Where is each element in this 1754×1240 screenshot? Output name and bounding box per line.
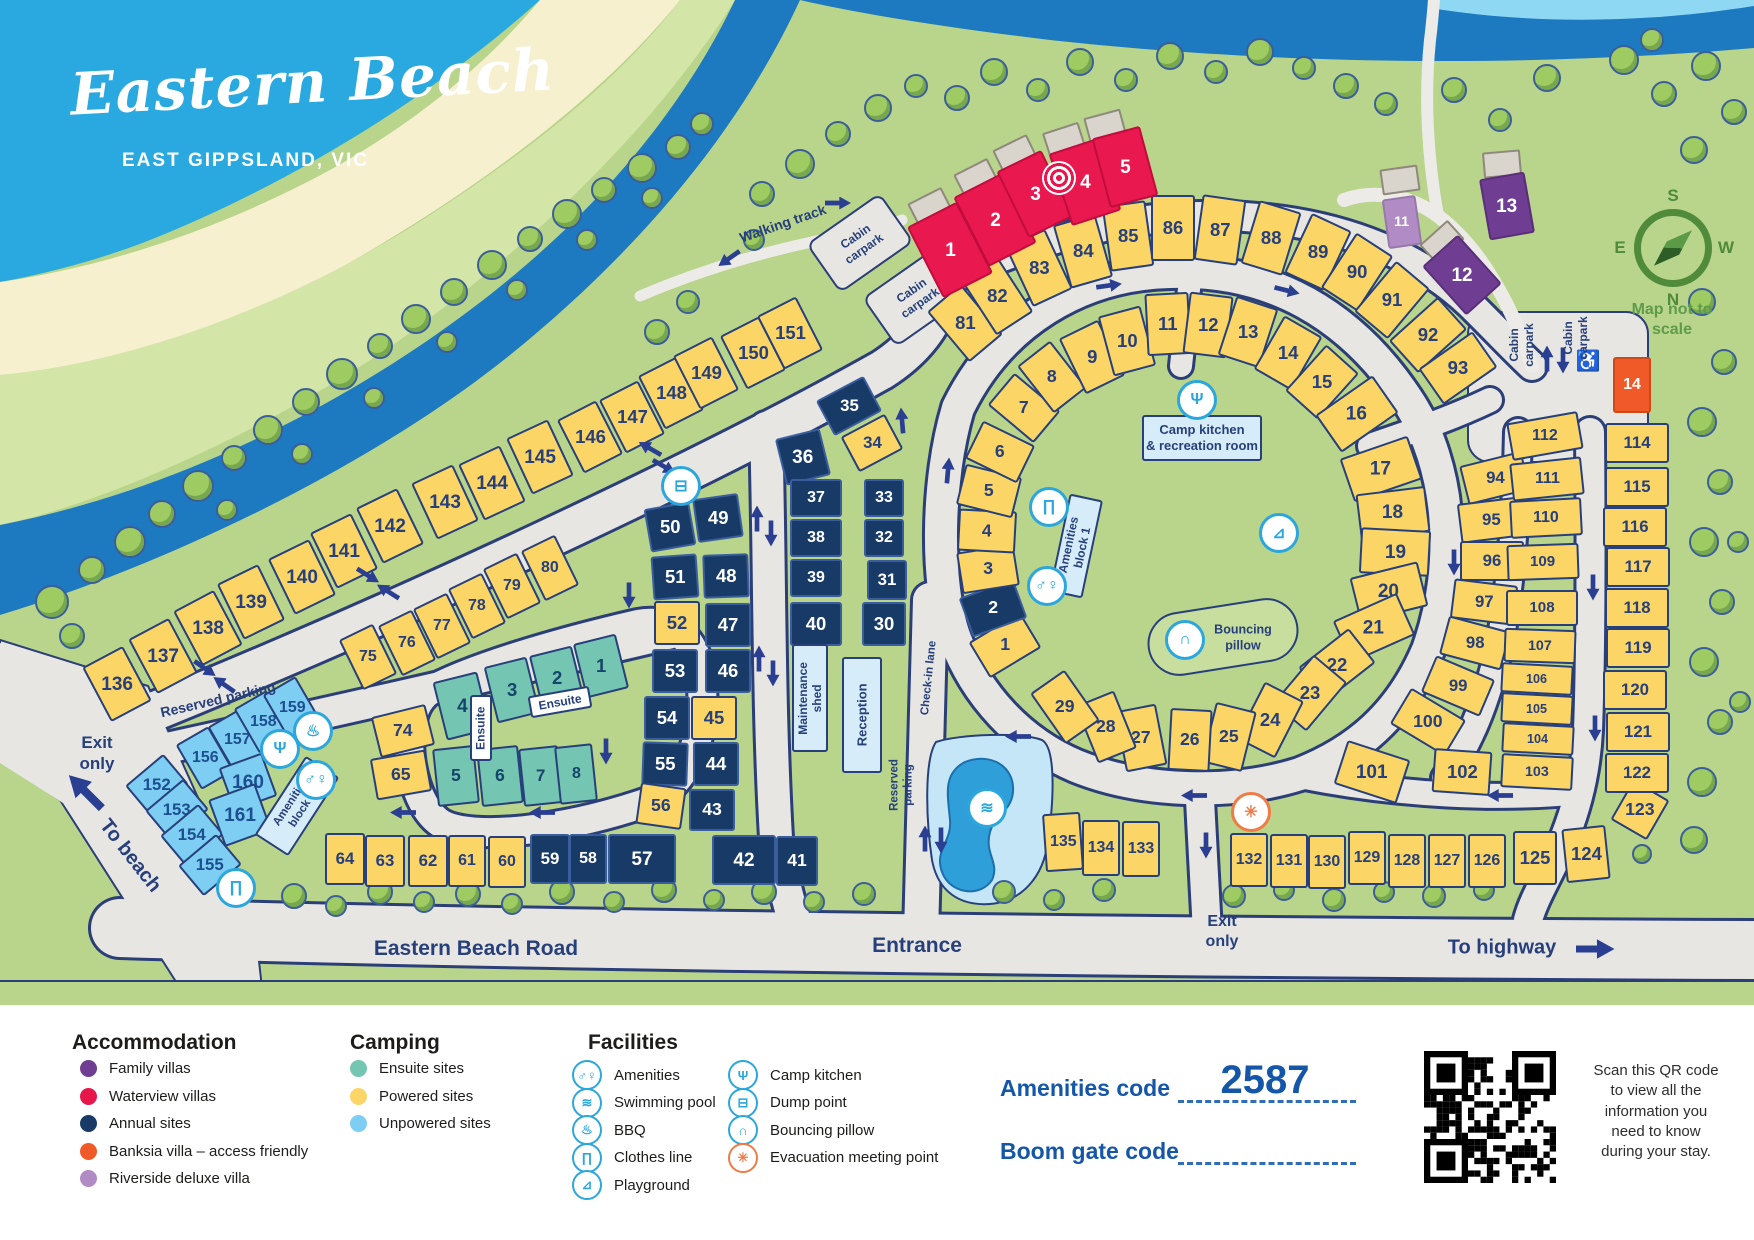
site-number: 60 xyxy=(498,854,516,870)
site-number: 130 xyxy=(1314,854,1341,870)
evacuation-meeting-point-icon: ✳ xyxy=(1231,792,1271,832)
site-number: 53 xyxy=(665,662,686,680)
site-number: 13 xyxy=(1238,323,1259,341)
tree-icon xyxy=(35,585,69,619)
site-number: 5 xyxy=(451,767,461,785)
tree-icon xyxy=(1632,844,1652,864)
site-number: 2 xyxy=(552,669,562,687)
site-number: 148 xyxy=(656,384,687,402)
tree-icon xyxy=(501,893,523,915)
site-number: 39 xyxy=(807,570,825,586)
site-number: 30 xyxy=(874,615,895,633)
site-number: 32 xyxy=(875,530,893,546)
qr-caption-line: to view all the xyxy=(1566,1081,1746,1101)
tree-icon xyxy=(1709,589,1735,615)
site-number: 146 xyxy=(575,428,606,446)
site-n-57: 57 xyxy=(608,834,676,884)
tree-icon xyxy=(1292,56,1316,80)
site-number: 105 xyxy=(1526,703,1547,716)
site-n-50: 50 xyxy=(644,501,697,552)
site-y-127: 127 xyxy=(1428,834,1466,888)
site-number: 136 xyxy=(101,675,133,694)
site-n-46: 46 xyxy=(705,649,751,693)
site-number: 144 xyxy=(476,474,508,493)
map-label: Reserved parking xyxy=(888,759,917,811)
site-y-108: 108 xyxy=(1506,590,1578,626)
tree-icon xyxy=(749,181,775,207)
tree-icon xyxy=(944,85,970,111)
tree-icon xyxy=(1691,51,1721,81)
site-number: 161 xyxy=(224,806,256,825)
bbq-icon: ♨ xyxy=(572,1115,602,1145)
site-n-31: 31 xyxy=(867,560,907,600)
site-number: 85 xyxy=(1118,227,1139,245)
site-number: 76 xyxy=(398,635,416,651)
site-number: 7 xyxy=(1019,399,1029,417)
legend-item-label: Annual sites xyxy=(109,1115,191,1132)
site-number: 33 xyxy=(875,490,893,506)
legend-item-label: Unpowered sites xyxy=(379,1115,491,1132)
map-label: Eastern Beach Road xyxy=(374,936,578,962)
site-number: 57 xyxy=(631,850,652,869)
site-y-115: 115 xyxy=(1605,467,1669,507)
site-n-55: 55 xyxy=(641,741,689,787)
site-number: 34 xyxy=(863,435,882,452)
site-y-121: 121 xyxy=(1606,712,1670,752)
playground-icon: ⊿ xyxy=(1259,513,1299,553)
site-number: 75 xyxy=(359,649,377,665)
site-number: 8 xyxy=(1047,368,1057,386)
tree-icon xyxy=(1374,92,1398,116)
tree-icon xyxy=(326,358,358,390)
site-y-122: 122 xyxy=(1605,753,1669,793)
site-n-47: 47 xyxy=(705,603,751,647)
site-n-41: 41 xyxy=(776,836,818,886)
compass-s: S xyxy=(1667,186,1678,206)
site-number: 18 xyxy=(1382,503,1403,522)
tree-icon xyxy=(1533,64,1561,92)
site-y-114: 114 xyxy=(1605,423,1669,463)
site-number: 31 xyxy=(878,572,897,589)
tree-icon xyxy=(1707,469,1733,495)
tree-icon xyxy=(785,149,815,179)
tree-icon xyxy=(992,880,1016,904)
tree-icon xyxy=(1092,878,1116,902)
tree-icon xyxy=(690,112,714,136)
tree-icon xyxy=(401,304,431,334)
building-label: Camp kitchen & recreation room xyxy=(1146,422,1258,453)
compass-e: E xyxy=(1614,238,1625,258)
legend-item-ensuite-sites: Ensuite sites xyxy=(350,1060,464,1077)
tree-icon xyxy=(253,415,283,445)
legend-item-label: Playground xyxy=(614,1177,690,1194)
site-number: 114 xyxy=(1623,435,1650,452)
site-number: 102 xyxy=(1447,763,1478,781)
dump-point-icon: ⊟ xyxy=(728,1088,758,1118)
site-number: 94 xyxy=(1486,470,1505,487)
site-y-62: 62 xyxy=(408,835,448,887)
site-number: 65 xyxy=(391,766,411,784)
site-y-106: 106 xyxy=(1500,662,1573,696)
legend-item-label: Family villas xyxy=(109,1060,191,1077)
site-number: 141 xyxy=(328,542,360,561)
tree-icon xyxy=(1333,73,1359,99)
boom-gate-code-label: Boom gate code xyxy=(1000,1138,1179,1165)
site-number: 44 xyxy=(706,755,727,773)
site-number: 118 xyxy=(1623,600,1650,617)
tree-icon xyxy=(703,889,725,911)
site-number: 135 xyxy=(1050,834,1077,850)
building: Maintenance shed xyxy=(792,644,828,752)
bouncing-pillow-icon: ∩ xyxy=(728,1115,758,1145)
site-y-52: 52 xyxy=(654,601,700,645)
legend-item-label: Amenities xyxy=(614,1067,680,1084)
tree-icon xyxy=(1204,60,1228,84)
site-number: 56 xyxy=(651,797,671,815)
site-number: 8 xyxy=(572,766,581,782)
map-label: Exit only xyxy=(80,732,115,775)
site-number: 132 xyxy=(1236,852,1263,868)
site-number: 157 xyxy=(224,732,251,748)
legend-item-label: Camp kitchen xyxy=(770,1067,862,1084)
tree-icon xyxy=(281,883,307,909)
site-number: 51 xyxy=(665,568,686,586)
tree-icon xyxy=(603,891,625,913)
site-n-48: 48 xyxy=(702,553,750,599)
tree-icon xyxy=(1246,38,1274,66)
site-number: 143 xyxy=(429,493,461,512)
site-y-26: 26 xyxy=(1167,708,1212,772)
tree-icon xyxy=(1680,826,1708,854)
site-number: 45 xyxy=(704,709,725,727)
clothes-line-icon: ∏ xyxy=(572,1143,602,1173)
legend-item-label: Ensuite sites xyxy=(379,1060,464,1077)
site-y-134: 134 xyxy=(1082,820,1120,876)
site-number: 87 xyxy=(1210,221,1231,239)
tree-icon xyxy=(221,445,247,471)
site-e-8: 8 xyxy=(554,743,598,805)
park-map-poster: Eastern Beach EAST GIPPSLAND, VIC 123456… xyxy=(0,0,1754,1240)
site-number: 125 xyxy=(1520,849,1551,867)
legend-item-label: Powered sites xyxy=(379,1088,473,1105)
site-number: 24 xyxy=(1260,711,1281,729)
site-number: 80 xyxy=(541,560,559,576)
legend-item-playground: ⊿Playground xyxy=(572,1170,690,1200)
tree-icon xyxy=(1680,136,1708,164)
tree-icon xyxy=(517,226,543,252)
legend-item-evacuation-meeting-point: ✳Evacuation meeting point xyxy=(728,1143,938,1173)
site-number: 2 xyxy=(988,599,998,617)
site-number: 115 xyxy=(1623,479,1650,496)
clothes-line-icon: ∏ xyxy=(1029,487,1069,527)
tree-icon xyxy=(1609,45,1639,75)
site-number: 36 xyxy=(792,448,813,467)
building: Camp kitchen & recreation room xyxy=(1142,415,1262,461)
site-number: 28 xyxy=(1096,718,1116,736)
site-number: 1 xyxy=(945,241,956,260)
tree-icon xyxy=(1640,28,1664,52)
legend-item-unpowered-sites: Unpowered sites xyxy=(350,1115,491,1132)
building-label: Ensuite xyxy=(537,691,582,713)
site-number: 124 xyxy=(1571,845,1602,863)
site-number: 108 xyxy=(1529,600,1554,615)
legend-item-amenities: ♂♀Amenities xyxy=(572,1060,680,1090)
site-rd-11: 11 xyxy=(1382,195,1423,249)
site-number: 121 xyxy=(1624,724,1652,741)
amenities-icon: ♂♀ xyxy=(1027,566,1067,606)
site-y-131: 131 xyxy=(1270,834,1308,888)
site-number: 4 xyxy=(457,697,468,716)
site-y-102: 102 xyxy=(1432,748,1493,796)
legend-item-label: Dump point xyxy=(770,1094,847,1111)
site-y-133: 133 xyxy=(1122,821,1160,877)
map-label: Entrance xyxy=(872,933,962,959)
site-number: 58 xyxy=(579,851,597,867)
tree-icon xyxy=(291,443,313,465)
site-number: 1 xyxy=(596,657,606,675)
swimming-pool-icon: ≋ xyxy=(967,788,1007,828)
site-y-105: 105 xyxy=(1500,692,1573,726)
site-number: 119 xyxy=(1624,640,1651,657)
site-number: 16 xyxy=(1346,404,1367,423)
site-number: 11 xyxy=(1394,215,1409,229)
legend-color-dot xyxy=(80,1170,97,1187)
legend-color-dot xyxy=(80,1060,97,1077)
site-number: 40 xyxy=(806,615,827,633)
site-number: 155 xyxy=(196,857,224,874)
legend-item-label: Riverside deluxe villa xyxy=(109,1170,250,1187)
site-y-86: 86 xyxy=(1151,195,1195,261)
tree-icon xyxy=(591,177,617,203)
tree-icon xyxy=(1026,78,1050,102)
site-number: 96 xyxy=(1483,553,1502,570)
site-number: 4 xyxy=(982,522,992,540)
legend-item-bbq: ♨BBQ xyxy=(572,1115,646,1145)
legend-item-dump-point: ⊟Dump point xyxy=(728,1088,847,1118)
building-label: Maintenance shed xyxy=(796,662,825,735)
site-number: 92 xyxy=(1418,326,1439,344)
site-number: 123 xyxy=(1625,801,1654,819)
site-y-130: 130 xyxy=(1308,835,1346,889)
site-y-135: 135 xyxy=(1042,812,1084,873)
site-number: 89 xyxy=(1308,243,1329,261)
playground-icon: ⊿ xyxy=(572,1170,602,1200)
site-y-111: 111 xyxy=(1509,456,1585,501)
site-number: 103 xyxy=(1525,765,1549,779)
tree-icon xyxy=(325,895,347,917)
site-number: 133 xyxy=(1128,841,1155,857)
legend-item-clothes-line: ∏Clothes line xyxy=(572,1143,692,1173)
site-n-40: 40 xyxy=(790,602,842,646)
site-number: 23 xyxy=(1300,684,1321,702)
legend-item-label: Evacuation meeting point xyxy=(770,1149,938,1166)
site-number: 42 xyxy=(733,851,754,870)
site-number: 82 xyxy=(987,287,1008,305)
site-number: 150 xyxy=(738,344,769,362)
site-number: 63 xyxy=(376,853,395,870)
site-n-54: 54 xyxy=(644,696,690,740)
site-number: 142 xyxy=(374,517,406,536)
site-n-39: 39 xyxy=(790,559,842,597)
qr-caption-line: information you xyxy=(1566,1102,1746,1122)
site-y-107: 107 xyxy=(1503,628,1576,664)
amenities-code-line xyxy=(1178,1100,1356,1103)
legend-item-label: Waterview villas xyxy=(109,1088,216,1105)
site-y-125: 125 xyxy=(1513,831,1557,885)
site-number: 127 xyxy=(1434,853,1461,869)
site-number: 78 xyxy=(468,598,486,614)
tree-icon xyxy=(803,891,825,913)
tree-icon xyxy=(363,387,385,409)
site-number: 19 xyxy=(1384,543,1405,562)
site-number: 7 xyxy=(536,768,545,785)
site-number: 137 xyxy=(147,647,179,666)
tree-icon xyxy=(1651,81,1677,107)
site-number: 86 xyxy=(1163,219,1184,237)
tree-icon xyxy=(641,187,663,209)
site-y-129: 129 xyxy=(1348,831,1386,885)
site-n-42: 42 xyxy=(712,835,776,885)
amenities-icon: ♂♀ xyxy=(572,1060,602,1090)
site-y-126: 126 xyxy=(1468,834,1506,888)
site-number: 77 xyxy=(433,618,451,634)
site-y-116: 116 xyxy=(1603,507,1667,547)
site-number: 52 xyxy=(667,614,688,632)
tree-icon xyxy=(413,891,435,913)
tree-icon xyxy=(1711,349,1737,375)
site-number: 3 xyxy=(983,560,993,578)
tree-icon xyxy=(1689,527,1719,557)
legend-color-dot xyxy=(80,1088,97,1105)
site-number: 158 xyxy=(250,714,277,730)
site-y-45: 45 xyxy=(691,696,737,740)
site-y-117: 117 xyxy=(1606,547,1670,587)
site-number: 91 xyxy=(1382,291,1403,309)
site-number: 88 xyxy=(1261,229,1282,247)
site-number: 55 xyxy=(655,755,676,773)
site-number: 129 xyxy=(1354,850,1381,866)
site-y-87: 87 xyxy=(1194,194,1247,265)
legend-item-label: Banksia villa – access friendly xyxy=(109,1143,308,1160)
site-number: 83 xyxy=(1029,259,1050,277)
site-number: 37 xyxy=(807,490,825,506)
map-area: Eastern Beach EAST GIPPSLAND, VIC 123456… xyxy=(0,0,1754,1005)
legend-item-bouncing-pillow: ∩Bouncing pillow xyxy=(728,1115,874,1145)
site-y-56: 56 xyxy=(635,782,686,830)
site-number: 139 xyxy=(235,593,267,612)
tree-icon xyxy=(436,331,458,353)
tree-icon xyxy=(1066,48,1094,76)
site-number: 6 xyxy=(995,443,1005,461)
legend-facilities-header: Facilities xyxy=(588,1031,678,1055)
bbq-icon: ♨ xyxy=(293,711,333,751)
site-n-33: 33 xyxy=(864,479,904,517)
tree-icon xyxy=(114,526,146,558)
site-number: 2 xyxy=(990,211,1001,230)
site-number: 104 xyxy=(1527,733,1548,746)
site-number: 6 xyxy=(495,767,505,785)
tree-icon xyxy=(1687,767,1717,797)
site-y-109: 109 xyxy=(1506,543,1579,581)
site-number: 154 xyxy=(178,827,206,844)
site-number: 79 xyxy=(503,578,521,594)
site-n-58: 58 xyxy=(569,834,607,884)
site-n-30: 30 xyxy=(862,602,906,646)
tree-icon xyxy=(1729,691,1751,713)
site-number: 9 xyxy=(1087,348,1097,366)
site-number: 29 xyxy=(1055,698,1075,716)
site-y-128: 128 xyxy=(1388,834,1426,888)
site-n-38: 38 xyxy=(790,519,842,557)
legend-item-label: BBQ xyxy=(614,1122,646,1139)
site-y-110: 110 xyxy=(1509,497,1583,539)
site-number: 156 xyxy=(192,750,219,766)
site-number: 93 xyxy=(1448,359,1469,377)
site-number: 100 xyxy=(1413,713,1442,731)
tree-icon xyxy=(676,290,700,314)
site-number: 122 xyxy=(1623,765,1651,782)
building-label: Reception xyxy=(854,684,870,747)
site-number: 112 xyxy=(1532,428,1558,444)
tree-icon xyxy=(1043,889,1065,911)
map-label: Cabin carpark xyxy=(1507,323,1537,366)
site-number: 117 xyxy=(1624,559,1651,576)
site-number: 128 xyxy=(1394,853,1421,869)
legend-item-label: Bouncing pillow xyxy=(770,1122,874,1139)
site-number: 64 xyxy=(336,851,355,868)
legend-item-powered-sites: Powered sites xyxy=(350,1088,473,1105)
camp-kitchen-icon: Ψ xyxy=(1177,380,1217,420)
site-number: 41 xyxy=(787,852,807,870)
site-number: 38 xyxy=(807,530,825,546)
site-y-63: 63 xyxy=(365,835,405,887)
site-number: 48 xyxy=(716,567,737,585)
compass-w: W xyxy=(1718,238,1734,258)
legend-color-dot xyxy=(350,1115,367,1132)
site-bk-14: 14 xyxy=(1613,357,1651,413)
site-number: 134 xyxy=(1088,840,1115,856)
legend-item-annual-sites: Annual sites xyxy=(80,1115,191,1132)
site-n-59: 59 xyxy=(530,834,570,884)
tree-icon xyxy=(1689,647,1719,677)
site-number: 110 xyxy=(1533,510,1559,526)
tree-icon xyxy=(78,556,106,584)
amenities-code-value: 2587 xyxy=(1221,1058,1310,1103)
site-number: 5 xyxy=(984,482,994,500)
building: Ensuite xyxy=(470,695,492,761)
site-number: 43 xyxy=(702,801,722,819)
site-number: 131 xyxy=(1276,853,1303,869)
site-number: 74 xyxy=(393,722,413,740)
site-n-32: 32 xyxy=(864,519,904,557)
site-number: 147 xyxy=(617,408,648,426)
site-number: 12 xyxy=(1451,266,1472,285)
site-number: 15 xyxy=(1312,373,1333,391)
site-number: 26 xyxy=(1180,731,1200,749)
evacuation-meeting-point-icon: ✳ xyxy=(728,1143,758,1173)
legend-footer: Accommodation Camping Facilities Family … xyxy=(0,1005,1754,1240)
site-number: 10 xyxy=(1117,332,1138,350)
qr-caption-line: Scan this QR code xyxy=(1566,1061,1746,1081)
site-number: 84 xyxy=(1073,242,1094,260)
tree-icon xyxy=(292,388,320,416)
site-number: 107 xyxy=(1528,639,1552,653)
tree-icon xyxy=(825,121,851,147)
legend-accommodation-header: Accommodation xyxy=(72,1031,237,1055)
map-label: To highway xyxy=(1448,936,1557,961)
site-n-43: 43 xyxy=(689,789,735,831)
tree-icon xyxy=(182,470,214,502)
